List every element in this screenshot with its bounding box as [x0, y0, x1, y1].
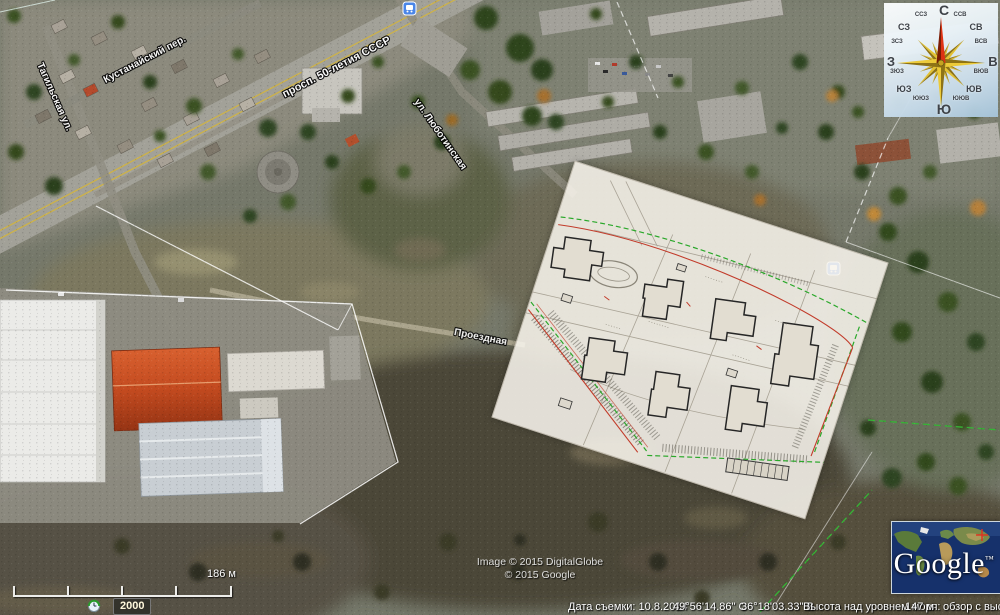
trademark-symbol: ™	[985, 554, 994, 564]
compass-label-w: З	[887, 55, 895, 68]
historical-imagery-year[interactable]: 2000	[113, 598, 151, 615]
copyright-line2: © 2015 Google	[420, 569, 660, 582]
compass-rose: С ССВ СВ ВСВ В ВЮВ ЮВ ЮЮВ Ю ЮЮЗ ЮЗ ЗЮЗ З…	[884, 3, 998, 117]
status-eye-altitude: обзор с выс	[943, 601, 1000, 613]
status-elevation-value: 147 м	[905, 601, 934, 613]
scale-bar	[13, 586, 232, 597]
earth-view[interactable]: просп. 50-летия СССР Кустанайский пер. Т…	[0, 0, 1000, 615]
compass-label-ese: ВЮВ	[974, 69, 989, 75]
compass-label-ssw: ЮЮЗ	[913, 96, 929, 102]
plan-garages	[726, 458, 789, 480]
compass-label-sw: ЮЗ	[897, 85, 912, 94]
compass-label-n: С	[939, 3, 949, 17]
scale-label: 186 м	[196, 568, 236, 580]
compass-label-se: ЮВ	[966, 85, 982, 94]
compass-label-s: Ю	[937, 102, 951, 116]
compass-label-e: В	[988, 55, 997, 68]
compass-label-nnw: ССЗ	[915, 12, 927, 18]
status-latitude: 49°56'14.86" С	[673, 601, 746, 613]
compass-label-sse: ЮЮВ	[953, 96, 970, 102]
plan-buildings	[512, 227, 836, 460]
bus-stop-icon[interactable]	[403, 2, 416, 15]
compass-label-wnw: ЗСЗ	[891, 39, 903, 45]
compass-label-wsw: ЗЮЗ	[890, 69, 904, 75]
historical-imagery-clock-icon[interactable]	[87, 599, 101, 613]
imagery-copyright: Image © 2015 DigitalGlobe © 2015 Google	[420, 556, 660, 582]
compass-label-nne: ССВ	[954, 12, 967, 18]
google-logo: Google™	[888, 547, 1000, 581]
compass-label-ne: СВ	[970, 23, 983, 32]
compass-label-nw: СЗ	[898, 23, 910, 32]
copyright-line1: Image © 2015 DigitalGlobe	[420, 556, 660, 569]
status-imagery-date: Дата съемки: 10.8.2014	[568, 601, 687, 613]
compass-label-ene: ВСВ	[975, 39, 988, 45]
